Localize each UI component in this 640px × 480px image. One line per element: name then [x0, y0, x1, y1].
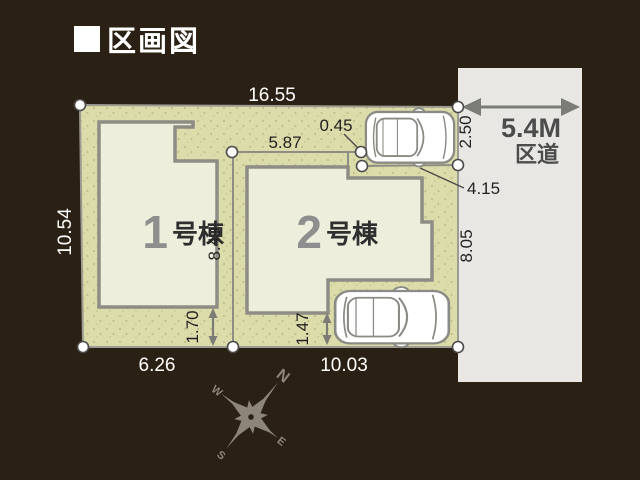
entrance-line	[362, 165, 458, 166]
dim-bottom-right: 10.03	[320, 355, 368, 376]
building-2-number: 2	[296, 206, 322, 258]
dim-offset-top: 0.45	[319, 116, 352, 135]
compass-n-label: N	[273, 366, 293, 387]
dim-right-lower: 8.05	[457, 229, 476, 262]
road-type-label: 区道	[515, 142, 559, 167]
compass-icon: N W E S	[179, 340, 321, 480]
building-2-suffix: 号棟	[326, 219, 379, 249]
dim-bottom-left: 6.26	[139, 355, 176, 376]
compass-s-label: S	[214, 449, 227, 463]
road-width-label: 5.4M	[501, 113, 561, 143]
dim-setback-2: 1.47	[293, 312, 312, 345]
dim-setback-1: 1.70	[183, 310, 202, 343]
building-1-number: 1	[142, 206, 168, 258]
car-bottom-icon	[335, 287, 449, 347]
plot-map-canvas: 区画図 5.4M 区道	[0, 0, 640, 480]
dim-parking-top: 5.87	[268, 133, 301, 152]
dim-left: 10.54	[55, 208, 76, 256]
dim-entrance-right: 4.15	[467, 179, 500, 198]
dim-divider: 8.49	[205, 227, 224, 260]
car-top-icon	[366, 108, 454, 166]
dim-right-upper: 2.50	[456, 115, 475, 148]
dim-top: 16.55	[248, 85, 296, 106]
site-plan-svg: 5.4M 区道 1 号棟 2 号棟	[0, 0, 640, 480]
compass-w-label: W	[209, 383, 225, 399]
